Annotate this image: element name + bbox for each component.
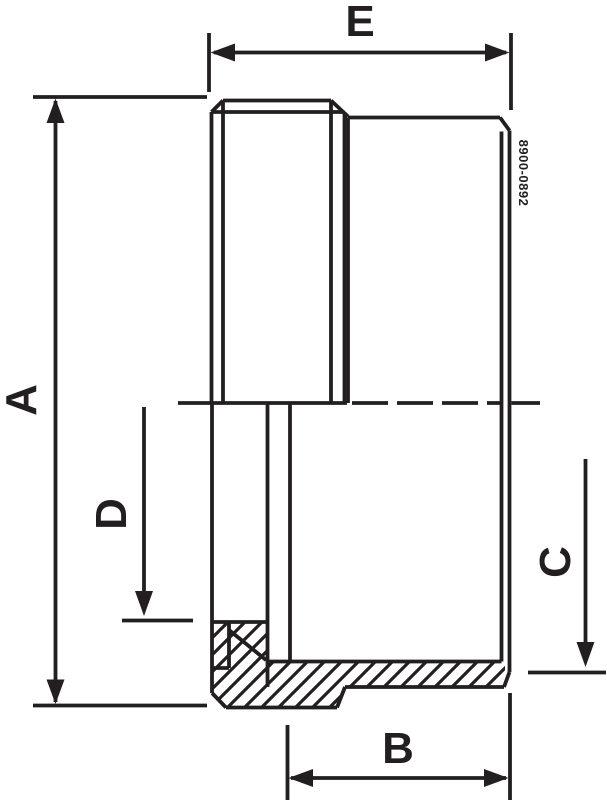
drawing-svg: E A D C B 8900-0892 [0,0,607,800]
hatch-bottom-band [268,662,506,688]
part-number-text: 8900-0892 [516,140,531,207]
dim-label-b: B [382,724,414,773]
dim-d-arrow-down [135,591,153,616]
dim-label-d: D [87,498,136,530]
dim-a-arrow-down [47,680,65,705]
dim-b-arrow-right [484,769,509,787]
dim-a-arrow-up [47,99,65,124]
dim-label-a: A [0,384,46,416]
wide-top-chamfer [500,118,510,131]
technical-drawing-canvas: E A D C B 8900-0892 [0,0,607,800]
dim-label-c: C [531,546,580,578]
dim-e-arrow-right [485,44,510,62]
dim-c-arrow-down [577,642,595,667]
dim-label-e: E [345,0,374,46]
section-hatching [212,622,505,708]
dim-e-arrow-left [211,44,236,62]
part-outline [178,101,540,708]
dim-b-arrow-left [289,769,314,787]
hatch-foot [212,687,345,708]
